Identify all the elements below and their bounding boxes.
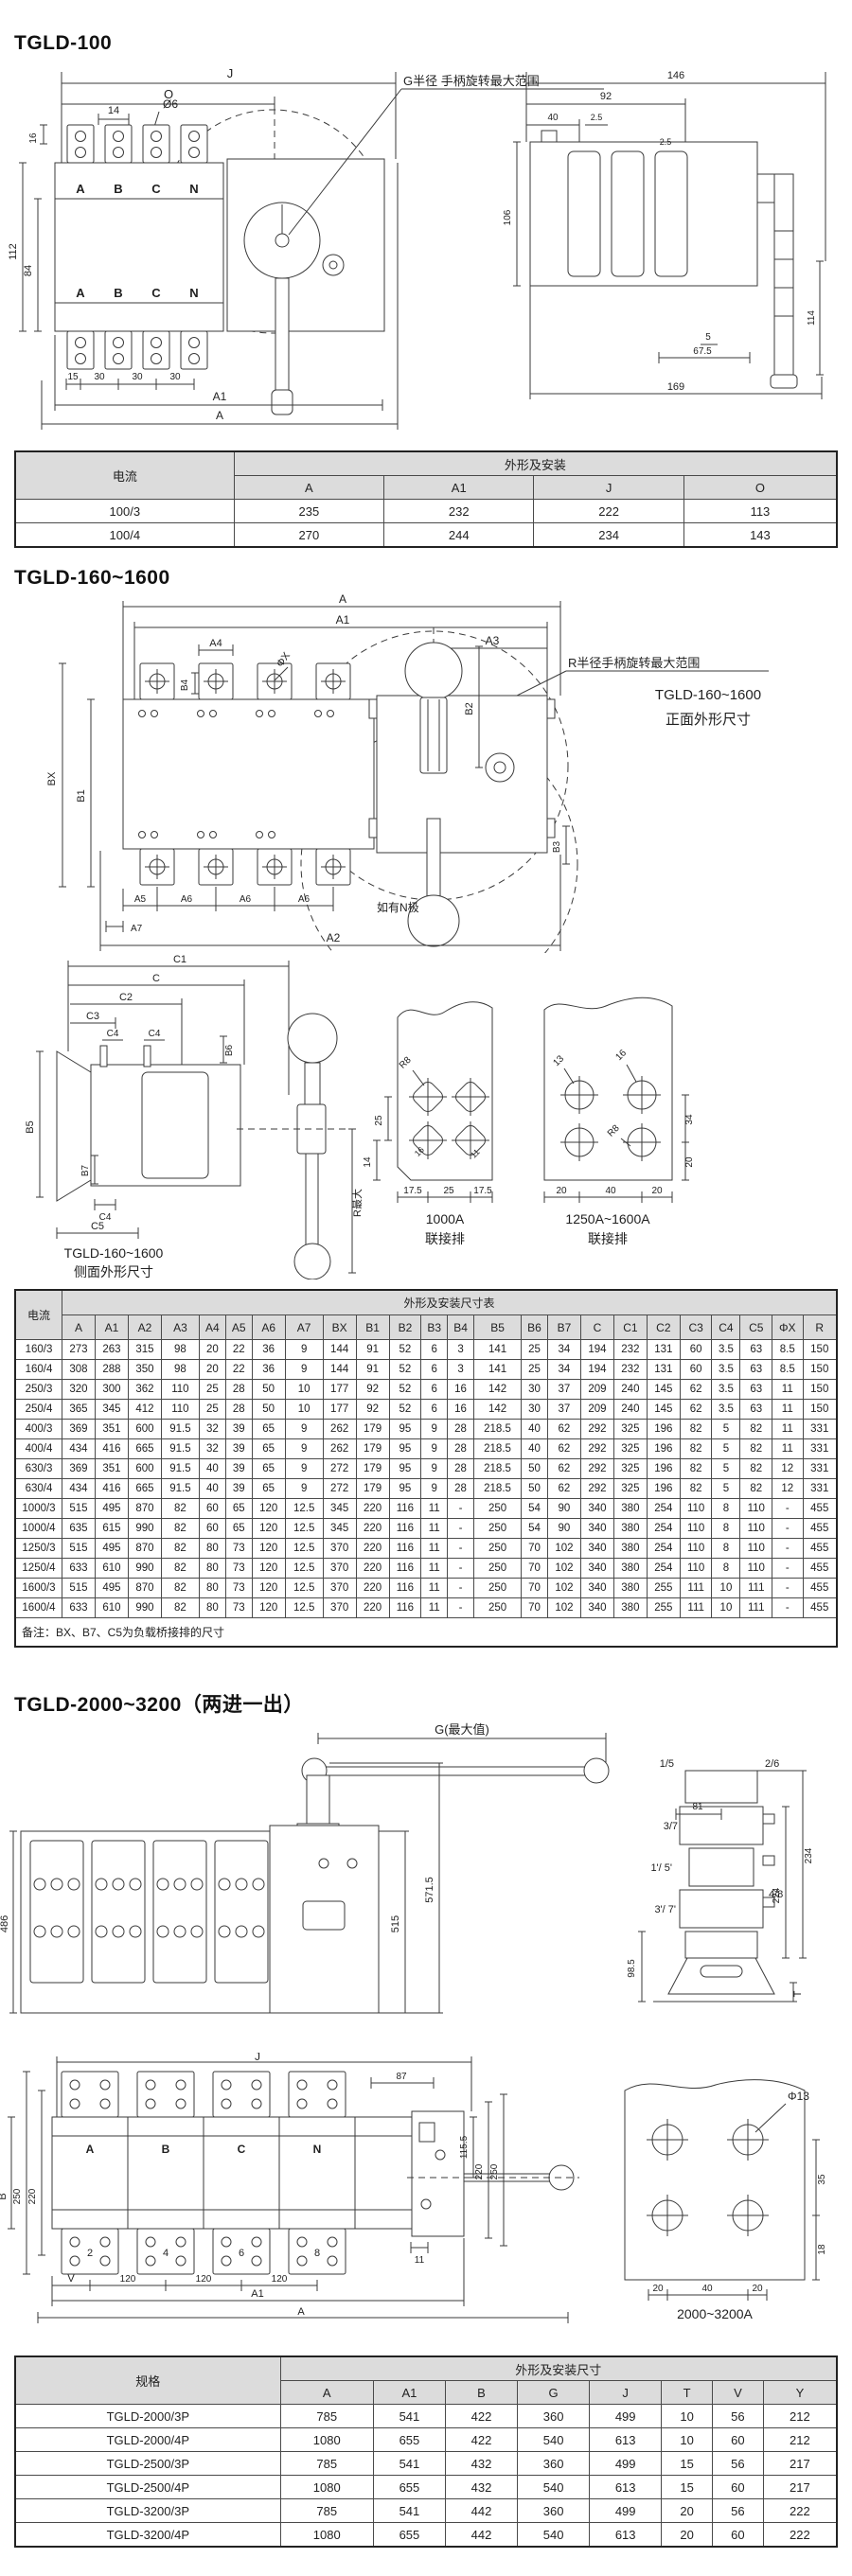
column-header: B4 xyxy=(448,1315,474,1340)
drawing-label: B xyxy=(114,182,122,196)
drawing-label: 正面外形尺寸 xyxy=(666,712,751,728)
stack-plate xyxy=(689,1848,754,1886)
dimension-cell: 194 xyxy=(580,1340,613,1360)
dimension-cell: 6 xyxy=(421,1340,448,1360)
dimension-cell: 62 xyxy=(680,1380,712,1400)
dimension-cell: 62 xyxy=(547,1459,580,1479)
dimension-cell: 8 xyxy=(712,1539,740,1559)
dimension-cell: 98 xyxy=(161,1360,199,1380)
dimension-cell: 28 xyxy=(225,1380,252,1400)
dimension-cell: - xyxy=(448,1559,474,1579)
drawing-label: Φ13 xyxy=(788,2090,809,2103)
dimension-cell: 131 xyxy=(647,1340,680,1360)
column-header: A3 xyxy=(161,1315,199,1340)
dimension-cell: 37 xyxy=(547,1380,580,1400)
column-header: A1 xyxy=(373,2381,445,2405)
dimension-cell: 272 xyxy=(323,1459,356,1479)
dimension-cell: 52 xyxy=(389,1340,421,1360)
table-row: TGLD-2000/4P10806554225406131060212 xyxy=(15,2428,837,2452)
drawing-label: A6 xyxy=(298,894,311,905)
drawing-label: 2000~3200A xyxy=(677,2306,753,2321)
dimension-cell: 28 xyxy=(448,1420,474,1439)
dimension-cell: 380 xyxy=(613,1519,647,1539)
dimension-cell: 92 xyxy=(356,1380,389,1400)
dimension-cell: 62 xyxy=(547,1420,580,1439)
dimension-cell: 28 xyxy=(448,1479,474,1499)
dimension-cell: 65 xyxy=(225,1499,252,1519)
group-header: 外形及安装尺寸表 xyxy=(62,1290,838,1315)
dimension-cell: 37 xyxy=(547,1400,580,1420)
dimension-cell: 540 xyxy=(518,2523,590,2548)
table-row: 1000/351549587082606512012.534522011611-… xyxy=(15,1499,837,1519)
dimension-cell: 22 xyxy=(225,1360,252,1380)
drawing-label: 30 xyxy=(94,372,105,382)
dimension-cell: 40 xyxy=(522,1439,548,1459)
column-header: Y xyxy=(763,2381,837,2405)
dimension-cell: 370 xyxy=(323,1559,356,1579)
column-header: C1 xyxy=(613,1315,647,1340)
dimension-cell: - xyxy=(772,1598,803,1618)
dimension-cell: 63 xyxy=(740,1340,772,1360)
drawing-label: Ø6 xyxy=(163,97,178,111)
dimension-cell: 434 xyxy=(62,1479,96,1499)
drawing-label: A4 xyxy=(209,638,222,649)
dimension-cell: 3.5 xyxy=(712,1380,740,1400)
dimension-cell: 1080 xyxy=(280,2523,373,2548)
dimension-cell: - xyxy=(772,1519,803,1539)
drawing-label: C1 xyxy=(173,954,186,965)
dimension-cell: 80 xyxy=(199,1559,225,1579)
dimension-cell: 60 xyxy=(680,1360,712,1380)
dimension-cell: 272 xyxy=(323,1479,356,1499)
dimension-cell: 82 xyxy=(680,1459,712,1479)
dimension-cell: 70 xyxy=(522,1579,548,1598)
dimension-cell: 82 xyxy=(740,1479,772,1499)
dimension-cell: 82 xyxy=(740,1459,772,1479)
dimension-cell: 5 xyxy=(712,1420,740,1439)
drawing-label: A xyxy=(86,2143,95,2156)
row-label: 250/4 xyxy=(15,1400,62,1420)
page: TGLD-100 J xyxy=(0,0,852,2576)
dimension-cell: 340 xyxy=(580,1539,613,1559)
dimension-cell: 145 xyxy=(647,1400,680,1420)
drawing-label: 17.5 xyxy=(473,1186,492,1196)
dimension-cell: 9 xyxy=(421,1479,448,1499)
dimension-cell: 52 xyxy=(389,1360,421,1380)
drawing-label: 1000A xyxy=(426,1211,465,1226)
drawing-label: C xyxy=(238,2143,246,2156)
dimension-cell: 360 xyxy=(518,2452,590,2476)
drawing-label: 6 xyxy=(239,2248,244,2259)
dimension-cell: 3.5 xyxy=(712,1340,740,1360)
dimension-cell: 32 xyxy=(199,1439,225,1459)
dimension-cell: 351 xyxy=(95,1459,128,1479)
dimension-cell: 70 xyxy=(522,1559,548,1579)
drawing-label: 30 xyxy=(169,372,181,382)
dimension-cell: 613 xyxy=(590,2476,662,2499)
handle-arm-side xyxy=(774,174,793,375)
drawing-label: N xyxy=(189,182,198,196)
column-header: B3 xyxy=(421,1315,448,1340)
drawing-label: A5 xyxy=(134,894,147,905)
dimension-cell: 541 xyxy=(373,2405,445,2428)
dimension-cell: 40 xyxy=(199,1459,225,1479)
drawing-label: 87 xyxy=(396,2072,407,2082)
dimension-cell: 635 xyxy=(62,1519,96,1539)
drawing-label: 84 xyxy=(23,265,34,276)
table-row: TGLD-2500/3P7855414323604991556217 xyxy=(15,2452,837,2476)
dimension-cell: 144 xyxy=(323,1340,356,1360)
column-header: B7 xyxy=(547,1315,580,1340)
dimension-cell: 15 xyxy=(662,2452,713,2476)
dimension-cell: 369 xyxy=(62,1459,96,1479)
dimension-cell: 8 xyxy=(712,1519,740,1539)
drawing-label: N xyxy=(313,2143,322,2156)
drawing-label: A6 xyxy=(240,894,252,905)
dimension-cell: 90 xyxy=(547,1499,580,1519)
dimension-cell: 12.5 xyxy=(285,1598,323,1618)
dimension-cell: 3 xyxy=(448,1360,474,1380)
dimension-cell: 255 xyxy=(647,1579,680,1598)
dimension-cell: 416 xyxy=(95,1439,128,1459)
dimension-cell: 212 xyxy=(763,2428,837,2452)
drawing-label: B xyxy=(162,2143,170,2156)
dimension-cell: 82 xyxy=(740,1420,772,1439)
dimension-cell: 98 xyxy=(161,1340,199,1360)
column-header: C3 xyxy=(680,1315,712,1340)
dimension-cell: 220 xyxy=(356,1579,389,1598)
dimension-cell: 209 xyxy=(580,1380,613,1400)
dimension-cell: 60 xyxy=(713,2476,764,2499)
drawing-label: 40 xyxy=(605,1186,616,1196)
dimension-cell: 10 xyxy=(285,1400,323,1420)
dimension-cell: 65 xyxy=(252,1439,285,1459)
dimension-cell: 150 xyxy=(803,1360,837,1380)
dimension-cell: 499 xyxy=(590,2405,662,2428)
dimension-cell: 240 xyxy=(613,1380,647,1400)
dimension-cell: 495 xyxy=(95,1499,128,1519)
dimension-cell: 325 xyxy=(613,1439,647,1459)
dimension-cell: 12.5 xyxy=(285,1559,323,1579)
dimension-cell: 9 xyxy=(285,1439,323,1459)
row-label: 160/3 xyxy=(15,1340,62,1360)
dimension-cell: 25 xyxy=(199,1400,225,1420)
dimension-cell: 63 xyxy=(740,1400,772,1420)
dimension-cell: 102 xyxy=(547,1598,580,1618)
dimension-cell: 36 xyxy=(252,1340,285,1360)
dimension-cell: 179 xyxy=(356,1420,389,1439)
switch-body-top xyxy=(52,2117,412,2229)
drawing-label: N xyxy=(189,286,198,300)
dimension-cell: 340 xyxy=(580,1579,613,1598)
table-note: 备注：BX、B7、C5为负载桥接排的尺寸 xyxy=(15,1618,837,1648)
column-header: V xyxy=(713,2381,764,2405)
dimension-cell: 541 xyxy=(373,2499,445,2523)
row-label: 100/4 xyxy=(15,523,234,548)
dimension-cell: 615 xyxy=(95,1519,128,1539)
dimension-cell: 12.5 xyxy=(285,1519,323,1539)
dimension-cell: 95 xyxy=(389,1439,421,1459)
drawing-label: 11 xyxy=(415,2255,425,2266)
dimension-cell: 34 xyxy=(547,1360,580,1380)
dimension-cell: 308 xyxy=(62,1360,96,1380)
tgld-100-dimensions-table: 电流外形及安装AA1JO100/3235232222113100/4270244… xyxy=(14,450,838,548)
dimension-cell: 62 xyxy=(680,1400,712,1420)
dimension-cell: 292 xyxy=(580,1420,613,1439)
drawing-label: 92 xyxy=(600,91,612,102)
drawing-label: 515 xyxy=(390,1915,401,1932)
group-header: 外形及安装尺寸 xyxy=(280,2356,837,2381)
dimension-cell: 8.5 xyxy=(772,1340,803,1360)
dimension-cell: 25 xyxy=(199,1380,225,1400)
stack-plate xyxy=(685,1771,757,1803)
dimension-cell: 16 xyxy=(448,1380,474,1400)
handle-lever xyxy=(427,819,440,898)
dimension-cell: 82 xyxy=(161,1598,199,1618)
drawing-label: 224 xyxy=(772,1887,782,1903)
dimension-cell: 11 xyxy=(772,1380,803,1400)
dimension-cell: 110 xyxy=(161,1380,199,1400)
column-header: A1 xyxy=(95,1315,128,1340)
dimension-cell: 270 xyxy=(234,523,383,548)
stack-plate xyxy=(680,1890,763,1928)
dimension-cell: 40 xyxy=(199,1479,225,1499)
dimension-cell: 212 xyxy=(763,2405,837,2428)
dimension-cell: 610 xyxy=(95,1598,128,1618)
dimension-cell: 131 xyxy=(647,1360,680,1380)
dimension-cell: 91 xyxy=(356,1360,389,1380)
dimension-cell: 196 xyxy=(647,1459,680,1479)
dimension-cell: 9 xyxy=(421,1420,448,1439)
drawing-label: 20 xyxy=(556,1186,567,1196)
row-label: 1600/3 xyxy=(15,1579,62,1598)
dimension-cell: 32 xyxy=(199,1420,225,1439)
dimension-cell: - xyxy=(772,1579,803,1598)
dimension-cell: 345 xyxy=(323,1519,356,1539)
dimension-cell: 340 xyxy=(580,1519,613,1539)
dimension-cell: 50 xyxy=(522,1479,548,1499)
dimension-cell: 6 xyxy=(421,1360,448,1380)
dimension-cell: 254 xyxy=(647,1539,680,1559)
column-header: R xyxy=(803,1315,837,1340)
drawing-label: 486 xyxy=(0,1915,10,1932)
drawing-label: 40 xyxy=(547,113,559,123)
dimension-cell: - xyxy=(772,1499,803,1519)
dimension-cell: 65 xyxy=(252,1420,285,1439)
dimension-cell: 177 xyxy=(323,1380,356,1400)
column-header: B xyxy=(445,2381,517,2405)
dimension-cell: 116 xyxy=(389,1539,421,1559)
dimension-cell: 292 xyxy=(580,1459,613,1479)
dimension-cell: 422 xyxy=(445,2405,517,2428)
dimension-cell: 325 xyxy=(613,1459,647,1479)
drawing-label: 35 xyxy=(817,2174,827,2185)
dimension-cell: 263 xyxy=(95,1340,128,1360)
dimension-cell: 254 xyxy=(647,1559,680,1579)
row-label: 630/3 xyxy=(15,1459,62,1479)
column-header: A6 xyxy=(252,1315,285,1340)
dimension-cell: 380 xyxy=(613,1539,647,1559)
drawing-label: 18 xyxy=(817,2244,827,2255)
dimension-cell: 432 xyxy=(445,2476,517,2499)
drawing-label: 98.5 xyxy=(627,1959,637,1978)
dimension-cell: 340 xyxy=(580,1499,613,1519)
dimension-cell: 90 xyxy=(547,1519,580,1539)
dimension-cell: 218.5 xyxy=(473,1479,521,1499)
dimension-cell: 292 xyxy=(580,1439,613,1459)
table-row: TGLD-2000/3P7855414223604991056212 xyxy=(15,2405,837,2428)
dimension-cell: 369 xyxy=(62,1420,96,1439)
dimension-cell: 250 xyxy=(473,1598,521,1618)
stack-plate xyxy=(685,1932,757,1958)
row-label: 400/3 xyxy=(15,1420,62,1439)
dimension-cell: 350 xyxy=(128,1360,161,1380)
dimension-cell: 11 xyxy=(772,1420,803,1439)
row-label: TGLD-2000/3P xyxy=(15,2405,280,2428)
dimension-cell: 785 xyxy=(280,2452,373,2476)
row-label: TGLD-3200/4P xyxy=(15,2523,280,2548)
dimension-cell: 110 xyxy=(740,1559,772,1579)
dimension-cell: 34 xyxy=(547,1340,580,1360)
dimension-cell: - xyxy=(448,1519,474,1539)
drawing-label: C xyxy=(151,286,161,300)
switch-body-front xyxy=(123,699,374,849)
dimension-cell: 870 xyxy=(128,1579,161,1598)
table-row: 1600/463361099082807312012.537022011611-… xyxy=(15,1598,837,1618)
table-row: 630/336935160091.5403965927217995928218.… xyxy=(15,1459,837,1479)
dimension-cell: 232 xyxy=(613,1360,647,1380)
row-label: 1000/3 xyxy=(15,1499,62,1519)
dimension-cell: 196 xyxy=(647,1420,680,1439)
dimension-cell: 10 xyxy=(712,1579,740,1598)
tgld-2000-3200-dimensions-table: 规格外形及安装尺寸AA1BGJTVYTGLD-2000/3P7855414223… xyxy=(14,2355,838,2548)
dimension-cell: 220 xyxy=(356,1559,389,1579)
drawing-label: 25 xyxy=(374,1115,384,1126)
dimension-cell: 91.5 xyxy=(161,1479,199,1499)
drawing-label: 1/5 xyxy=(660,1758,674,1770)
dimension-cell: 70 xyxy=(522,1598,548,1618)
drawing-label: J xyxy=(255,2053,260,2063)
dimension-cell: 250 xyxy=(473,1519,521,1539)
dimension-cell: 610 xyxy=(95,1559,128,1579)
dimension-cell: 60 xyxy=(713,2428,764,2452)
dimension-cell: 340 xyxy=(580,1559,613,1579)
section-title-tgld-100: TGLD-100 xyxy=(14,0,852,55)
dimension-cell: 110 xyxy=(680,1539,712,1559)
dimension-cell: 150 xyxy=(803,1380,837,1400)
tgld-2000-3200-front-side-drawing: G(最大值)486515571.51/52/6813/71'/ 5'3'/ 7'… xyxy=(0,1721,852,2053)
dimension-cell: 351 xyxy=(95,1420,128,1439)
dimension-cell: 11 xyxy=(421,1519,448,1539)
row-label: 1000/4 xyxy=(15,1519,62,1539)
dimension-cell: 63 xyxy=(740,1380,772,1400)
drawing-label: 14 xyxy=(363,1156,373,1168)
dimension-cell: 244 xyxy=(384,523,534,548)
dimension-cell: - xyxy=(448,1579,474,1598)
column-header: G xyxy=(518,2381,590,2405)
drawing-label: A xyxy=(216,409,223,422)
drawing-label: 40 xyxy=(701,2284,713,2294)
dimension-cell: 36 xyxy=(252,1360,285,1380)
drawing-label: 2/6 xyxy=(765,1758,779,1770)
drawing-label: B1 xyxy=(76,789,87,802)
column-header: O xyxy=(683,476,837,500)
group-header: 外形及安装 xyxy=(234,451,837,476)
column-header: B1 xyxy=(356,1315,389,1340)
dimension-cell: 1080 xyxy=(280,2428,373,2452)
dimension-cell: 111 xyxy=(740,1579,772,1598)
drawing-label: 2 xyxy=(87,2248,93,2259)
dimension-cell: 613 xyxy=(590,2428,662,2452)
drawing-label: C4 xyxy=(149,1029,161,1039)
drawing-label: B3 xyxy=(552,840,562,853)
dimension-cell: 540 xyxy=(518,2476,590,2499)
dimension-cell: 102 xyxy=(547,1579,580,1598)
dimension-cell: 320 xyxy=(62,1380,96,1400)
drawing-label: 250 xyxy=(12,2188,23,2204)
drawing-label: 1'/ 5' xyxy=(650,1862,672,1874)
dimension-cell: 12.5 xyxy=(285,1579,323,1598)
tgld-2000-3200-mounting-busbar-drawing: J87ABCN2468B250220115.522025011V12012012… xyxy=(0,2053,852,2327)
dimension-cell: 325 xyxy=(613,1479,647,1499)
dimension-cell: 434 xyxy=(62,1439,96,1459)
dimension-cell: 331 xyxy=(803,1459,837,1479)
handle-unit-front xyxy=(377,696,547,853)
dimension-cell: 12.5 xyxy=(285,1539,323,1559)
column-header: A xyxy=(62,1315,96,1340)
drawing-label: 220 xyxy=(474,2163,485,2179)
dimension-cell: 145 xyxy=(647,1380,680,1400)
drawing-label: C3 xyxy=(86,1011,99,1022)
dimension-cell: 8.5 xyxy=(772,1360,803,1380)
dimension-cell: 95 xyxy=(389,1479,421,1499)
dimension-cell: 515 xyxy=(62,1579,96,1598)
dimension-cell: 30 xyxy=(522,1400,548,1420)
dimension-cell: 82 xyxy=(161,1519,199,1539)
drawing-label: 20 xyxy=(651,1186,663,1196)
drawing-label: G半径 手柄旋转最大范围 xyxy=(403,74,540,88)
dimension-cell: 82 xyxy=(161,1499,199,1519)
drawing-label: 16 xyxy=(28,132,39,144)
dimension-cell: 990 xyxy=(128,1519,161,1539)
dimension-cell: 194 xyxy=(580,1360,613,1380)
drawing-label: 3/7 xyxy=(664,1821,678,1832)
dimension-cell: 232 xyxy=(384,500,534,523)
dimension-cell: 600 xyxy=(128,1459,161,1479)
dimension-cell: 234 xyxy=(534,523,683,548)
dimension-cell: 95 xyxy=(389,1420,421,1439)
table-row: 400/336935160091.5323965926217995928218.… xyxy=(15,1420,837,1439)
dimension-cell: 9 xyxy=(285,1340,323,1360)
dimension-cell: 142 xyxy=(473,1400,521,1420)
dimension-cell: 5 xyxy=(712,1439,740,1459)
table-row: 1600/351549587082807312012.537022011611-… xyxy=(15,1579,837,1598)
drawing-label: A6 xyxy=(181,894,193,905)
dimension-cell: 633 xyxy=(62,1598,96,1618)
dimension-cell: 113 xyxy=(683,500,837,523)
dimension-cell: 20 xyxy=(662,2523,713,2548)
drawing-label: 120 xyxy=(196,2274,212,2285)
column-header: A5 xyxy=(225,1315,252,1340)
dimension-cell: 28 xyxy=(225,1400,252,1420)
drawing-label: 571.5 xyxy=(424,1877,435,1903)
drawing-label: 15 xyxy=(67,372,79,382)
dimension-cell: 11 xyxy=(421,1579,448,1598)
drawing-label: J xyxy=(227,66,234,80)
drawing-label: 220 xyxy=(27,2188,38,2204)
dimension-cell: 73 xyxy=(225,1559,252,1579)
dimension-cell: 102 xyxy=(547,1559,580,1579)
